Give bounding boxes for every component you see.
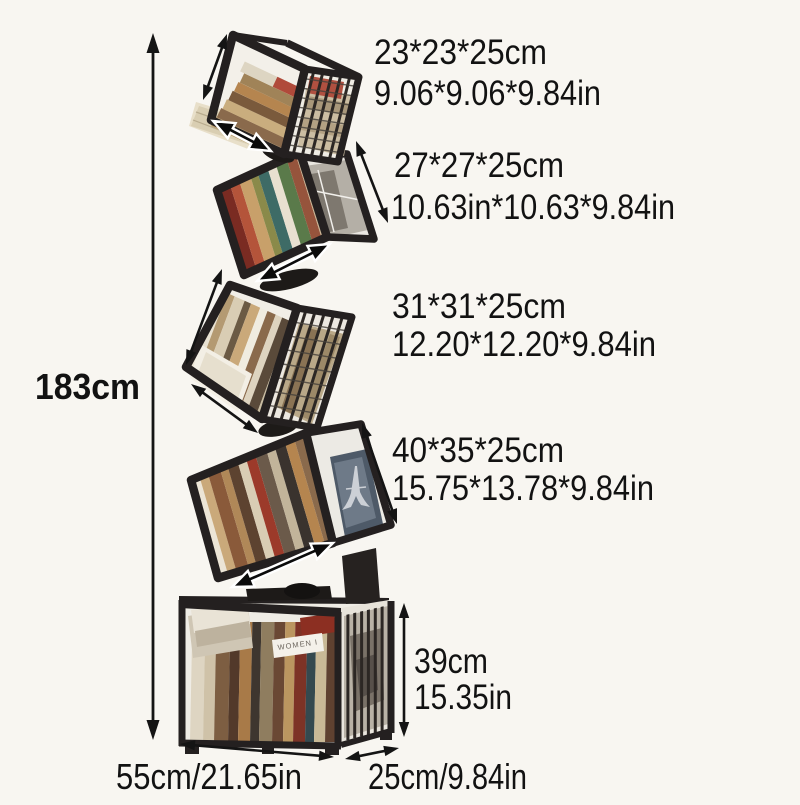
svg-text:40*35*25cm: 40*35*25cm: [392, 431, 564, 470]
svg-text:183cm: 183cm: [35, 366, 140, 407]
svg-text:23*23*25cm: 23*23*25cm: [374, 33, 547, 72]
svg-text:31*31*25cm: 31*31*25cm: [392, 287, 566, 326]
svg-text:25cm/9.84in: 25cm/9.84in: [368, 756, 527, 797]
svg-text:55cm/21.65in: 55cm/21.65in: [116, 756, 302, 797]
svg-text:15.35in: 15.35in: [414, 678, 512, 717]
svg-text:15.75*13.78*9.84in: 15.75*13.78*9.84in: [392, 469, 654, 508]
svg-text:9.06*9.06*9.84in: 9.06*9.06*9.84in: [374, 74, 601, 113]
svg-text:10.63in*10.63*9.84in: 10.63in*10.63*9.84in: [391, 188, 675, 227]
svg-text:39cm: 39cm: [414, 642, 488, 681]
svg-text:27*27*25cm: 27*27*25cm: [394, 146, 564, 185]
svg-text:12.20*12.20*9.84in: 12.20*12.20*9.84in: [392, 325, 656, 364]
